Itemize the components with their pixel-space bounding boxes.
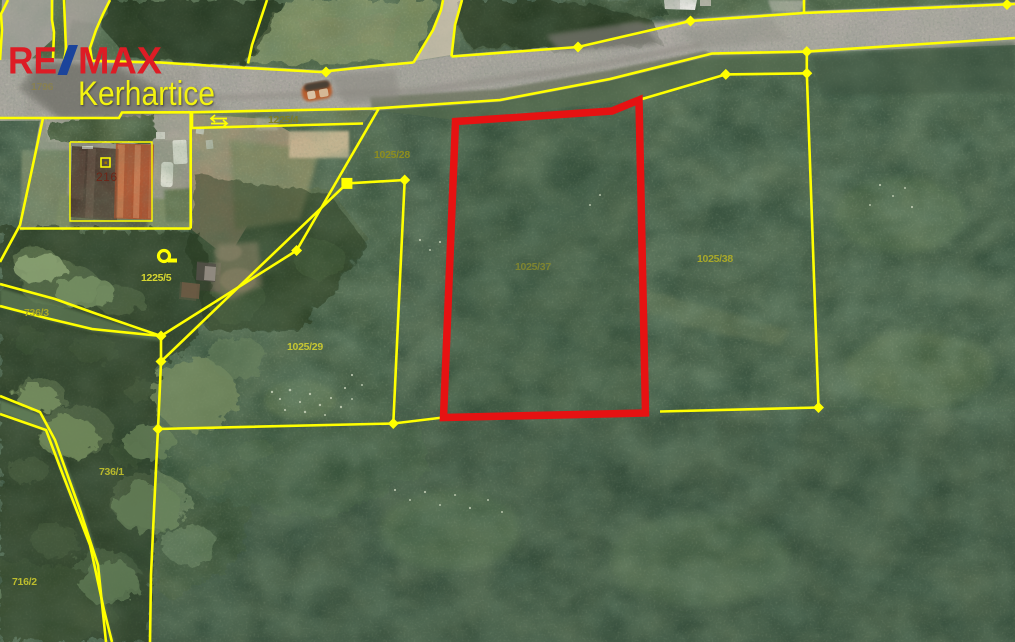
svg-text:1796: 1796: [31, 81, 54, 93]
svg-text:1225/4: 1225/4: [268, 114, 299, 126]
svg-text:RE: RE: [8, 41, 57, 83]
svg-text:1025/28: 1025/28: [374, 149, 410, 161]
svg-text:1225/5: 1225/5: [141, 272, 172, 284]
svg-text:716/2: 716/2: [12, 576, 37, 588]
svg-text:736/1: 736/1: [99, 466, 124, 478]
svg-text:1025/37: 1025/37: [515, 261, 551, 273]
svg-text:MAX: MAX: [78, 41, 163, 83]
svg-text:1025/38: 1025/38: [697, 253, 733, 265]
svg-text:1025/29: 1025/29: [287, 341, 323, 353]
svg-text:736/3: 736/3: [24, 307, 49, 319]
svg-text:216: 216: [96, 170, 118, 184]
